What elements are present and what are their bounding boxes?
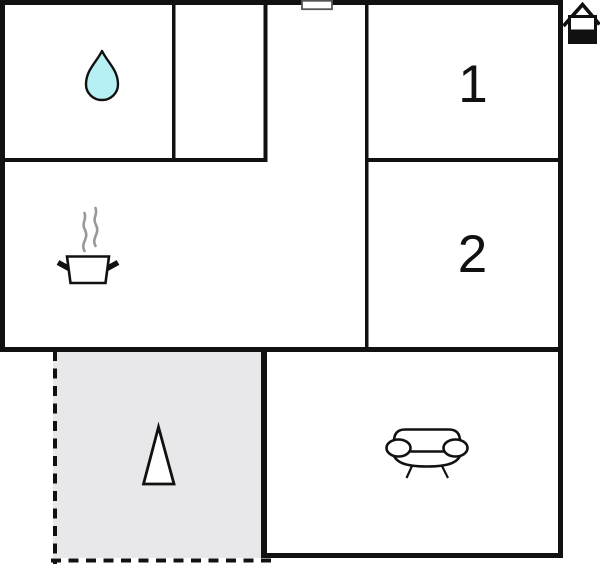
sofa-armrest-left bbox=[387, 440, 411, 457]
wall-utility-right bbox=[264, 0, 268, 162]
wall-bedroom1-bottom bbox=[365, 158, 563, 162]
floor-plan: 1 2 bbox=[0, 0, 600, 566]
sofa-armrest-right bbox=[444, 440, 468, 457]
wall-outer-left bbox=[0, 0, 5, 352]
wall-outer-right bbox=[558, 0, 563, 558]
sofa-icon bbox=[387, 430, 468, 479]
wall-livingroom-left bbox=[261, 347, 267, 558]
pot-body bbox=[67, 257, 109, 284]
steam-lines bbox=[83, 208, 97, 251]
floor-plan-canvas: 1 2 bbox=[0, 0, 600, 566]
door-icon bbox=[302, 1, 332, 9]
bedroom1-label: 1 bbox=[458, 55, 487, 114]
wall-hallway-right bbox=[365, 0, 369, 352]
wall-bathroom-right bbox=[172, 0, 176, 162]
wall-middle-horizontal bbox=[0, 347, 563, 352]
house-icon bbox=[564, 5, 600, 43]
sofa-leg-left bbox=[407, 466, 413, 478]
house-icon-base bbox=[570, 30, 595, 43]
wall-outer-top bbox=[0, 0, 563, 5]
wall-bathroom-bottom bbox=[0, 158, 268, 162]
water-drop-icon bbox=[86, 51, 118, 100]
cooking-pot-icon bbox=[58, 208, 118, 283]
wall-livingroom-bottom bbox=[261, 553, 563, 558]
sofa-leg-right bbox=[442, 466, 448, 478]
bedroom2-label: 2 bbox=[458, 225, 487, 284]
